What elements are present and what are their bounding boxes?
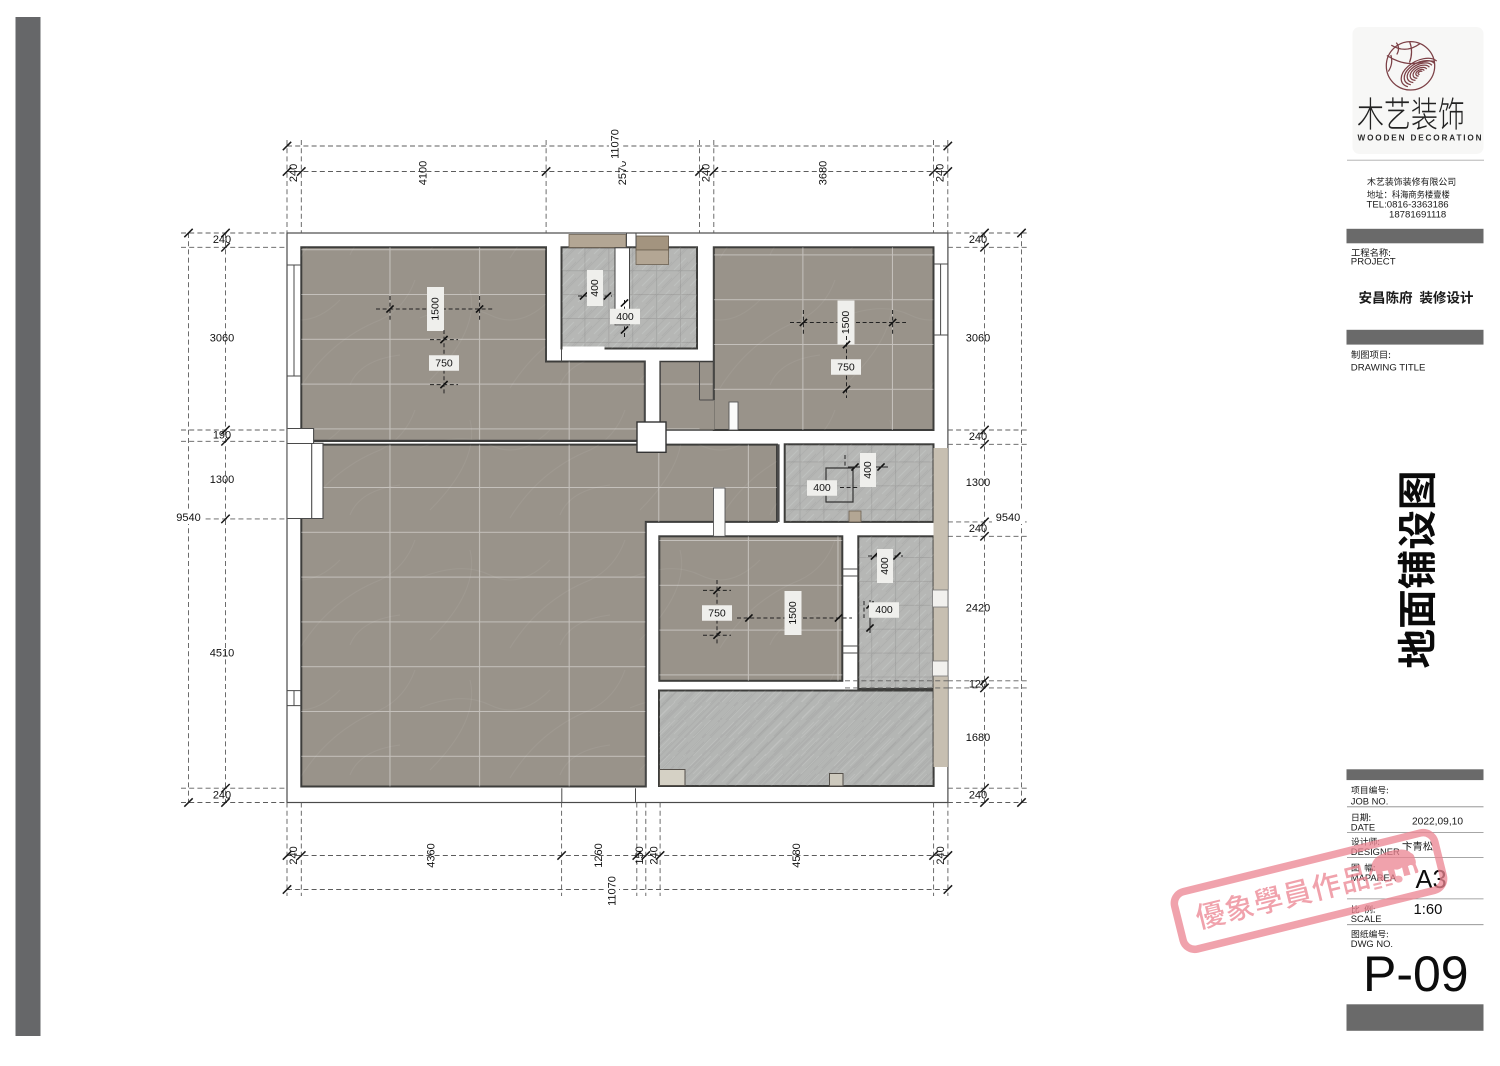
svg-text:240: 240 bbox=[288, 846, 300, 864]
svg-text:400: 400 bbox=[616, 311, 634, 323]
svg-text:120: 120 bbox=[969, 678, 987, 690]
svg-text:400: 400 bbox=[862, 461, 874, 479]
svg-text:150: 150 bbox=[634, 846, 646, 864]
svg-text:3060: 3060 bbox=[966, 333, 990, 345]
svg-text:9540: 9540 bbox=[176, 512, 200, 524]
svg-text:190: 190 bbox=[213, 430, 231, 442]
svg-text:3060: 3060 bbox=[210, 333, 234, 345]
svg-text:4360: 4360 bbox=[426, 843, 438, 867]
svg-text:240: 240 bbox=[969, 431, 987, 443]
svg-text:240: 240 bbox=[969, 234, 987, 246]
svg-text:400: 400 bbox=[875, 604, 893, 616]
svg-text:SCALE: SCALE bbox=[1351, 913, 1382, 924]
svg-text:2420: 2420 bbox=[966, 603, 990, 615]
svg-text:DATE: DATE bbox=[1351, 821, 1375, 832]
svg-text:JOB NO.: JOB NO. bbox=[1351, 795, 1389, 806]
svg-text:18781691118: 18781691118 bbox=[1389, 210, 1446, 221]
svg-text:750: 750 bbox=[708, 608, 726, 620]
svg-text:4580: 4580 bbox=[791, 843, 803, 867]
svg-text:1500: 1500 bbox=[840, 311, 852, 335]
svg-text:9540: 9540 bbox=[996, 512, 1020, 524]
svg-text:2022,09,10: 2022,09,10 bbox=[1412, 816, 1463, 827]
svg-text:400: 400 bbox=[813, 482, 831, 494]
svg-text:1260: 1260 bbox=[593, 843, 605, 867]
svg-text:1500: 1500 bbox=[430, 297, 442, 321]
svg-text:240: 240 bbox=[213, 234, 231, 246]
svg-text:P-09: P-09 bbox=[1363, 946, 1469, 1002]
svg-text:PROJECT: PROJECT bbox=[1351, 256, 1396, 267]
svg-text:1300: 1300 bbox=[210, 474, 234, 486]
svg-text:240: 240 bbox=[969, 789, 987, 801]
svg-text:240: 240 bbox=[935, 164, 947, 182]
svg-text:400: 400 bbox=[589, 279, 601, 297]
svg-text:3680: 3680 bbox=[818, 161, 830, 185]
svg-text:4510: 4510 bbox=[210, 648, 234, 660]
svg-text:750: 750 bbox=[837, 362, 855, 374]
svg-text:1500: 1500 bbox=[787, 601, 799, 625]
svg-text:11070: 11070 bbox=[610, 129, 622, 159]
svg-text:1680: 1680 bbox=[966, 732, 990, 744]
svg-text:WOODEN DECORATION: WOODEN DECORATION bbox=[1358, 133, 1484, 142]
svg-text:240: 240 bbox=[649, 846, 661, 864]
svg-text:1:60: 1:60 bbox=[1414, 902, 1443, 918]
svg-text:750: 750 bbox=[435, 358, 453, 370]
svg-text:4100: 4100 bbox=[418, 161, 430, 185]
svg-text:240: 240 bbox=[288, 164, 300, 182]
svg-text:11070: 11070 bbox=[607, 876, 619, 906]
svg-text:240: 240 bbox=[969, 523, 987, 535]
svg-text:1300: 1300 bbox=[966, 477, 990, 489]
svg-text:240: 240 bbox=[935, 846, 947, 864]
svg-text:240: 240 bbox=[213, 789, 231, 801]
svg-text:240: 240 bbox=[701, 164, 713, 182]
svg-text:400: 400 bbox=[879, 557, 891, 575]
svg-text:DRAWING TITLE: DRAWING TITLE bbox=[1351, 363, 1426, 374]
